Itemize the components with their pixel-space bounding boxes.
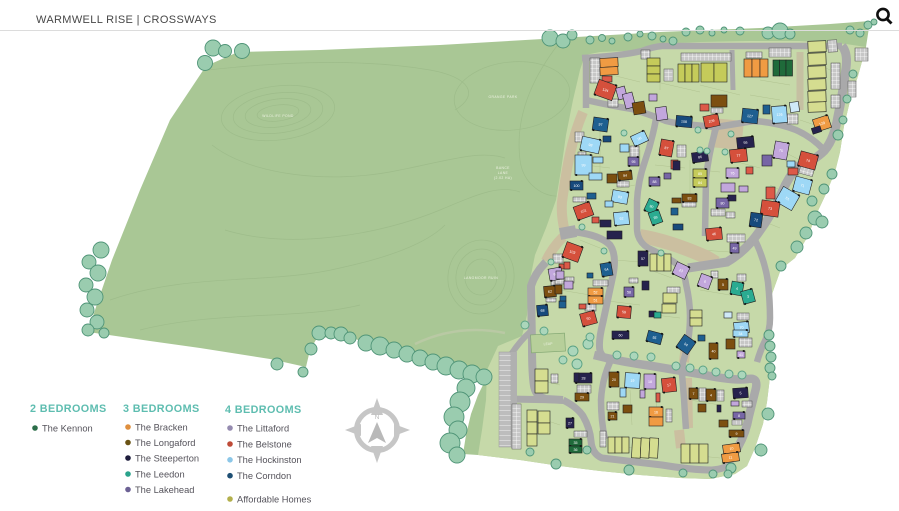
svg-text:94: 94: [623, 174, 627, 178]
svg-text:20: 20: [612, 378, 616, 382]
svg-text:40: 40: [712, 349, 716, 353]
svg-text:LANE: LANE: [498, 171, 509, 175]
svg-text:3 BEDROOMS: 3 BEDROOMS: [123, 403, 200, 415]
svg-text:97: 97: [598, 123, 603, 128]
svg-text:35: 35: [574, 441, 578, 445]
svg-text:The Kennon: The Kennon: [42, 423, 93, 433]
svg-text:54: 54: [604, 267, 609, 272]
svg-text:2 BEDROOMS: 2 BEDROOMS: [30, 403, 107, 415]
svg-text:(2.02 HA): (2.02 HA): [494, 176, 512, 180]
svg-text:75: 75: [779, 148, 784, 153]
svg-text:72: 72: [754, 218, 759, 223]
svg-text:85: 85: [698, 172, 702, 176]
svg-text:The Littaford: The Littaford: [237, 423, 289, 433]
svg-text:73: 73: [768, 207, 773, 212]
svg-text:88: 88: [653, 180, 657, 184]
svg-text:The Corndon: The Corndon: [237, 471, 291, 481]
svg-text:58: 58: [627, 290, 631, 294]
svg-text:95: 95: [632, 160, 636, 164]
svg-text:Affordable Homes: Affordable Homes: [237, 494, 312, 504]
svg-text:8: 8: [738, 414, 740, 418]
svg-text:4 BEDROOMS: 4 BEDROOMS: [225, 404, 302, 416]
svg-text:49: 49: [733, 246, 737, 250]
svg-text:29: 29: [580, 395, 584, 399]
svg-text:46: 46: [712, 232, 716, 236]
svg-text:100: 100: [574, 184, 580, 188]
svg-text:86: 86: [698, 155, 703, 160]
svg-text:56: 56: [743, 141, 747, 145]
svg-text:87: 87: [664, 146, 669, 151]
svg-text:108: 108: [681, 120, 687, 125]
svg-text:21: 21: [611, 414, 615, 418]
svg-text:52: 52: [594, 290, 598, 294]
svg-text:60: 60: [619, 333, 623, 337]
svg-text:76: 76: [731, 171, 735, 175]
svg-text:9: 9: [736, 432, 738, 436]
svg-text:51: 51: [594, 298, 598, 302]
svg-text:57: 57: [641, 257, 645, 261]
svg-text:4: 4: [710, 393, 712, 397]
svg-text:77: 77: [736, 154, 740, 158]
svg-text:The Steeperton: The Steeperton: [135, 453, 199, 463]
svg-text:7: 7: [693, 392, 695, 396]
svg-text:LEAP: LEAP: [543, 342, 553, 346]
svg-text:28: 28: [582, 376, 586, 380]
svg-text:LANGMOOR RUIN: LANGMOOR RUIN: [464, 276, 498, 280]
svg-text:92: 92: [619, 217, 623, 221]
svg-text:99: 99: [582, 163, 586, 167]
svg-text:16: 16: [654, 410, 658, 414]
svg-text:98: 98: [588, 143, 593, 148]
svg-text:WARMWELL RISE | CROSSWAYS: WARMWELL RISE | CROSSWAYS: [36, 14, 217, 26]
svg-text:70: 70: [739, 326, 743, 330]
svg-text:The Longaford: The Longaford: [135, 438, 195, 448]
svg-text:126: 126: [776, 113, 782, 117]
svg-text:83: 83: [688, 196, 692, 200]
svg-text:68: 68: [540, 309, 544, 313]
svg-text:The Leedon: The Leedon: [135, 469, 185, 479]
svg-text:127: 127: [747, 114, 753, 119]
svg-text:WILDLIFE POND: WILDLIFE POND: [262, 114, 294, 118]
svg-text:17: 17: [667, 383, 671, 387]
svg-text:5: 5: [722, 283, 724, 287]
svg-text:GRANGE PARK: GRANGE PARK: [488, 95, 517, 99]
svg-text:93: 93: [618, 195, 623, 200]
svg-text:62: 62: [548, 290, 552, 294]
svg-text:34: 34: [739, 332, 743, 336]
svg-text:41: 41: [739, 353, 743, 357]
svg-text:11: 11: [728, 456, 732, 460]
svg-text:The Belstone: The Belstone: [237, 439, 292, 449]
svg-text:The Bracken: The Bracken: [135, 422, 188, 432]
svg-text:80: 80: [721, 201, 725, 205]
svg-text:27: 27: [568, 421, 572, 425]
svg-text:The Lakehead: The Lakehead: [135, 485, 194, 495]
svg-text:BANCE: BANCE: [496, 166, 510, 170]
svg-text:5: 5: [739, 391, 741, 395]
svg-text:18: 18: [648, 380, 652, 384]
svg-text:N: N: [375, 414, 380, 421]
svg-text:59: 59: [622, 310, 626, 314]
svg-text:36: 36: [574, 448, 578, 452]
svg-text:10: 10: [729, 447, 734, 452]
svg-text:The Hockinston: The Hockinston: [237, 455, 302, 465]
svg-text:84: 84: [698, 181, 702, 185]
svg-text:19: 19: [630, 379, 634, 383]
